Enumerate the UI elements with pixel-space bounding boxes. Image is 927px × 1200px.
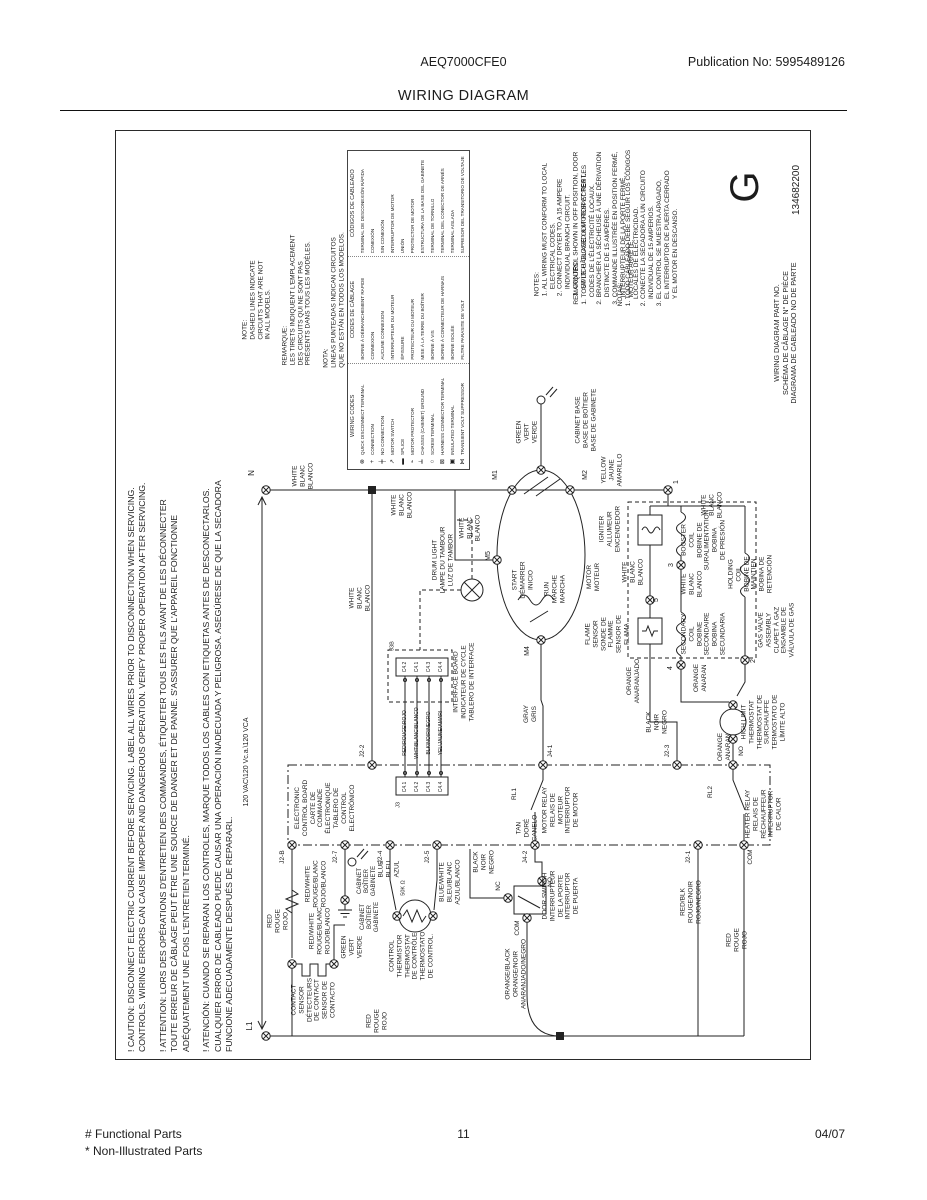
wire-orange-3: ORANGE ANARAN	[717, 733, 733, 761]
igniter: IGNITER ALLUMEUR ENCENDEDOR	[598, 506, 621, 552]
wire-yel-code: YEL\JAUNE\AMARI	[438, 711, 444, 755]
electronic-control-board: ELECTRONIC CONTROL BOARD CARTE DE COMMAN…	[294, 780, 356, 836]
voltage-label: 120 VAC\120 Vc.a.\120 VCA	[243, 718, 251, 807]
terminal-nc-door: NC	[495, 881, 503, 890]
terminal-com-heater: COM	[747, 849, 755, 864]
connector-j41: J4-1	[547, 745, 555, 758]
wire-wht-code: WHT\BLANC\BLANCO	[414, 707, 420, 758]
connector-j22: J2-2	[359, 745, 367, 758]
cabinet-ground-1: CABINET BOÎTIER GABINETE	[357, 866, 379, 896]
wire-gray: GRAY GRIS	[523, 705, 539, 723]
wire-red-3: RED ROUGE ROJO	[725, 928, 748, 952]
pin-c41-top: C4.1	[414, 662, 420, 673]
wire-orange-2: ORANGE ANARAN	[693, 664, 709, 692]
motor: MOTOR MOTEUR	[586, 563, 602, 591]
wire-red-2: RED ROUGE ROJO	[365, 1009, 388, 1033]
wire-red-white-2: RED/WHITE ROUGE/BLANC ROJO/BLANCO	[308, 907, 331, 954]
motor-relay: MOTOR RELAY RELAIS DE MOTEUR INTERRUPTOR…	[542, 787, 581, 834]
contact-sensor: CONTACT SENSOR DÉTECTEURS DE CONTACT SEN…	[291, 978, 338, 1022]
part-no-label: WIRING DIAGRAM PART NO. SCHÉMA DE CÂBLAG…	[773, 262, 799, 403]
connector-j24: J2-4	[377, 851, 385, 864]
pin-c42-top: C4.2	[402, 662, 408, 673]
notes-es: NOTAS: 1. TODO CABLEADO DEBE SEGUIR LOS …	[617, 150, 679, 307]
pin-c44-top: C4.4	[438, 662, 444, 673]
page-number: 11	[0, 1127, 927, 1141]
wire-yellow: YELLOW JAUNE AMARILLO	[600, 454, 623, 487]
motor-run: RUN MARCHE MARCHA	[543, 575, 566, 603]
connector-j23: J2-3	[664, 745, 672, 758]
wire-black-2: BLACK NOIR NEGRO	[645, 710, 668, 734]
revision-letter: G	[721, 171, 769, 202]
wire-blue-white: BLUE/WHITE BLEU/BLANC AZUL/BLANCO	[438, 859, 461, 904]
cabinet-base: CABINET BASE BASE DE BOÎTIER BASE DE GAB…	[574, 389, 597, 452]
wire-red-blk: RED/BLK ROUGE/NOIR ROJO/NEGRO	[679, 880, 702, 924]
diagram-labels-layer: NOTE: DASHED LINES INDICATE CIRCUITS THA…	[0, 0, 927, 1200]
pin-c41-bot: C4.1	[402, 782, 408, 793]
gas-terminal-5: 5	[653, 598, 661, 602]
wire-orange-black: ORANGE/BLACK ORANGE/NOIR ANARANJADO/NEGR…	[504, 939, 527, 1009]
terminal-no-heater: NO	[738, 746, 746, 756]
relay-rl2: RL2	[707, 786, 715, 798]
terminal-com-door: COM	[514, 920, 522, 935]
note-dashed-fr: REMARQUE: LES TIRETS INDIQUENT L'EMPLACE…	[281, 235, 312, 366]
footer-date: 04/07	[815, 1127, 845, 1141]
wire-white-1: WHITE BLANC BLANCO	[291, 463, 314, 490]
wire-orange-1: ORANGE ANARANJADO	[626, 659, 642, 703]
gas-valve: GAS VALVE ASSEMBLY CLAPET À GAZ ENSAMBLE…	[758, 603, 797, 658]
secondary-coil: SECONDARY COIL BOBINE SECONDAIRE BOBINA …	[681, 613, 728, 656]
wire-red-code: RED\ROUGE\ROJO	[402, 710, 408, 756]
terminal-m2: M2	[582, 470, 590, 480]
pin-c43-bot: C4.3	[426, 782, 432, 793]
flame-sensor: FLAME SENSOR SONDE DE FLAMME SENSOR DE F…	[585, 615, 632, 653]
gas-terminal-3: 3	[668, 563, 676, 567]
pin-c44-bot: C4.4	[438, 782, 444, 793]
terminal-l1: L1	[245, 1022, 255, 1031]
wire-white-2: WHITE BLANC BLANCO	[390, 492, 413, 519]
wire-green-1: GREEN VERT VERDE	[515, 420, 538, 443]
control-thermistor: CONTROL THERMISTOR THERMOSTAT DE CONTRÔL…	[389, 932, 436, 981]
terminal-n: N	[247, 470, 257, 476]
connector-j2b: J2-B	[279, 850, 287, 863]
footer-non-illustrated-parts: * Non-Illustrated Parts	[85, 1144, 202, 1158]
terminal-m4: M4	[524, 646, 532, 656]
wire-white-4: WHITE BLANC BLANCO	[458, 515, 481, 542]
note-dashed-es: NOTA: LINEAS PUNTEADAS INDICAN CIRCUITOS…	[322, 232, 345, 368]
wire-green-2: GREEN VERT VERDE	[340, 935, 363, 958]
connector-j27: J2-7	[332, 851, 340, 864]
heater-relay: HEATER RELAY RELAIS DE RÉCHAUFFEUR INTER…	[745, 789, 784, 838]
connector-j3b: J3B	[390, 641, 397, 650]
part-no-value: 134682200	[791, 165, 803, 215]
wire-red-1: RED ROUGE ROJO	[266, 909, 289, 933]
note-dashed-en: NOTE: DASHED LINES INDICATE CIRCUITS THA…	[241, 260, 272, 339]
terminal-m5: M5	[485, 551, 493, 561]
drum-light: DRUM LIGHT LAMPE DU TAMBOUR LUZ DE TAMBO…	[431, 527, 454, 594]
terminal-m1: M1	[492, 470, 500, 480]
pin-c43-top: C4.3	[426, 662, 432, 673]
cabinet-ground-2: CABINET BOÎTIER GABINETE	[360, 902, 382, 932]
connector-j3: J3	[396, 802, 403, 808]
pin-c42-bot: C4.2	[414, 782, 420, 793]
gas-terminal-1: 1	[673, 480, 681, 484]
terminal-no-door: NO	[547, 877, 555, 887]
booster-coil: BOOSTER COIL BOBINE DE SURALIMENTATION B…	[681, 510, 728, 571]
connector-j25: J2-5	[424, 851, 432, 864]
wire-white-3: WHITE BLANC BLANCO	[348, 585, 371, 612]
wire-white-7: WHITE BLANC BLANCO	[680, 571, 703, 598]
motor-start: START DÉMARRER INICIO	[511, 561, 534, 598]
wire-blk-code: BLK\NOIR\NEGRO	[426, 711, 432, 754]
thermistor-value: 50K Ω	[401, 880, 408, 895]
wire-white-6: WHITE BLANC BLANCO	[621, 559, 644, 586]
connector-j21: J2-1	[685, 851, 693, 864]
wire-red-white-1: RED/WHITE ROUGE/BLANC ROJO/BLANCO	[304, 860, 327, 907]
connector-j42: J4-2	[522, 851, 530, 864]
high-limit-thermostat: HIGH LIMIT THERMOSTAT THERMOSTAT DE SURC…	[741, 695, 788, 750]
relay-rl1: RL1	[511, 788, 519, 800]
gas-terminal-4: 4	[667, 666, 675, 670]
wire-black-1: BLACK NOIR NEGRO	[472, 850, 495, 874]
gas-terminal-2: 2	[750, 659, 758, 663]
wire-tan: TAN DORÉ CANELO	[515, 815, 538, 842]
interface-board: INTERFACE BOARD INDICATEUR DE CYCLE TABL…	[452, 643, 475, 722]
holding-coil: HOLDING COIL BOBINE DE MAINTIEN BOBINA D…	[728, 555, 775, 593]
